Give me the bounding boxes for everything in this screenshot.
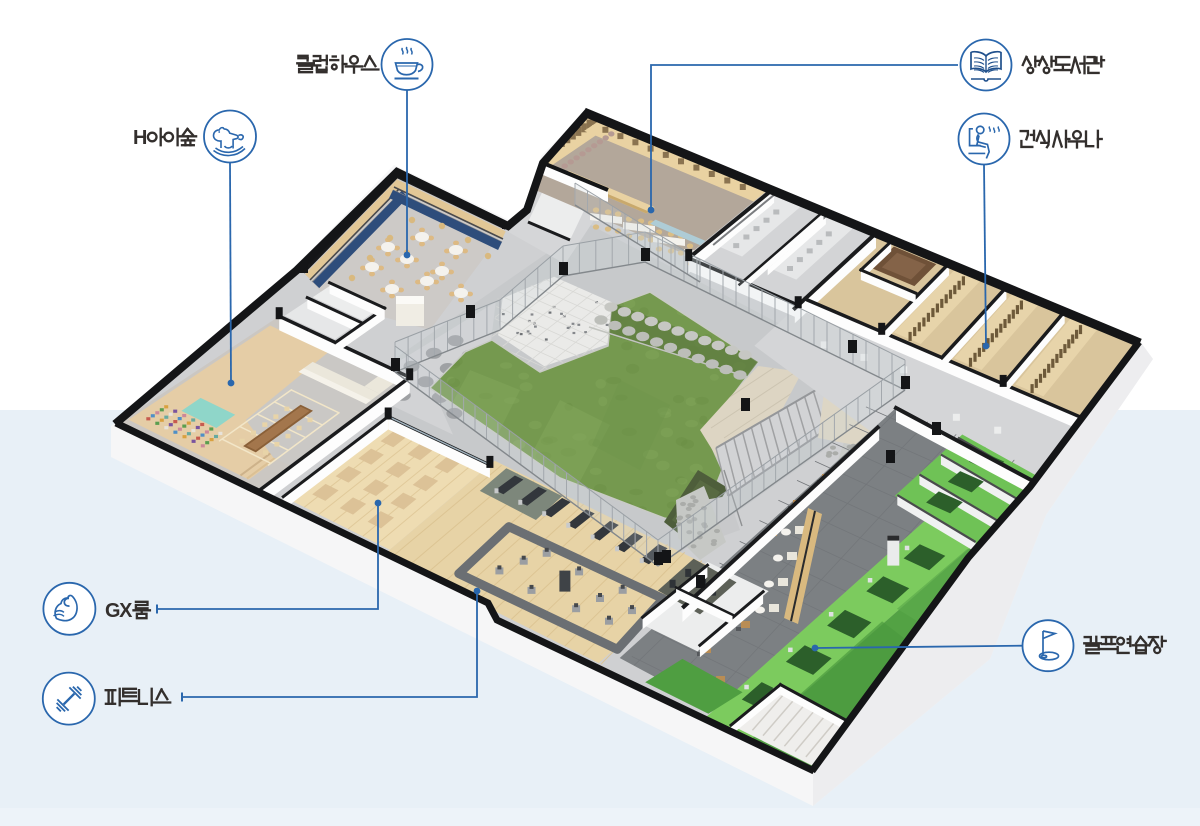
svg-text:H: H	[133, 127, 147, 149]
svg-text:X: X	[119, 600, 133, 622]
